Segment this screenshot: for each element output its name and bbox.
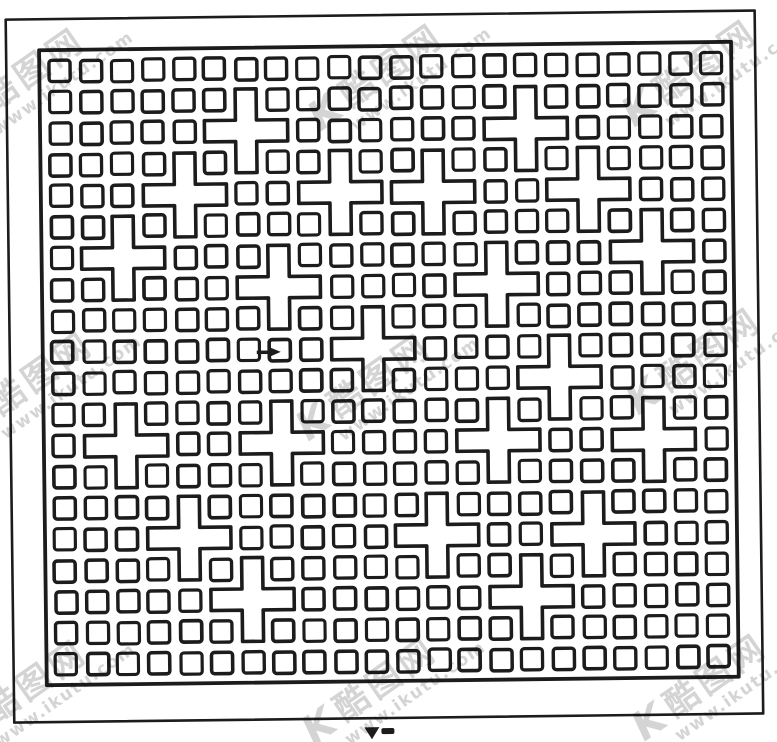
caption-fragment: [381, 728, 394, 734]
arrow-mark-icon: [268, 346, 281, 357]
cross-motifs: [80, 83, 699, 644]
pattern-group: [6, 11, 764, 742]
caption-fragment: [364, 727, 379, 739]
pattern-svg: [0, 0, 777, 742]
scan-canvas: K 酷图网 www.ikutu.com K 酷图网 www.ikutu.com …: [0, 0, 777, 742]
grid-squares: [48, 52, 730, 677]
